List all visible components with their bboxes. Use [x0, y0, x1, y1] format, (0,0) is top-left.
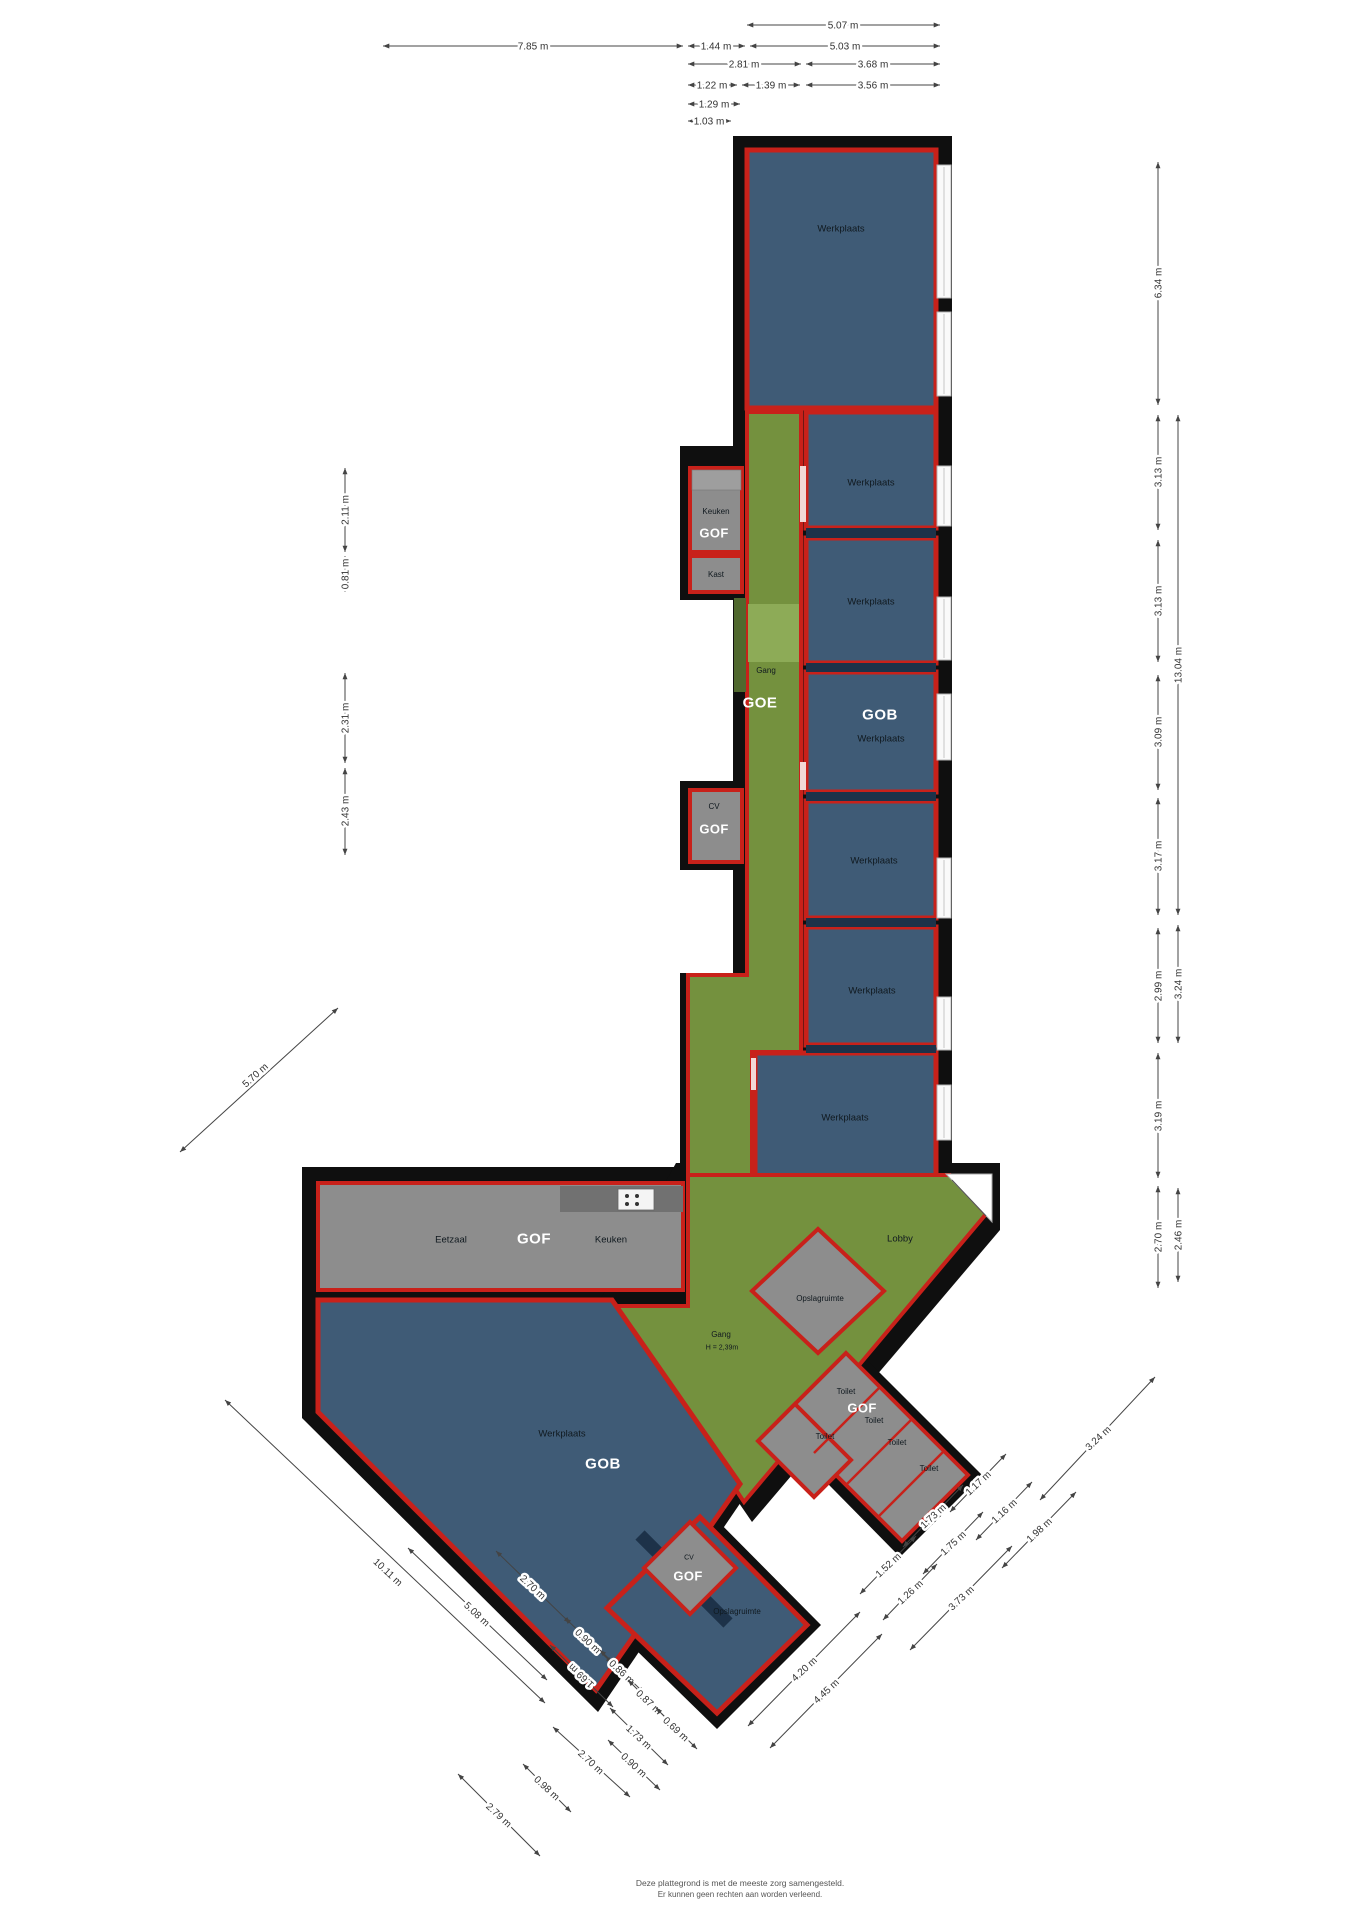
dimension-label: 2.70 m: [1154, 1222, 1165, 1253]
dimension-label: 5.70 m: [241, 1061, 271, 1090]
dimension-label: 2.31 m: [341, 703, 352, 734]
room-label: Werkplaats: [850, 855, 898, 866]
dim-left-diagonal-0: 5.70 m: [180, 1008, 338, 1152]
room-werkplaats-4-gob: [806, 672, 936, 792]
dimension-label: 5.03 m: [830, 42, 861, 53]
dimension-label: 0.87 m: [633, 1688, 663, 1717]
dim-right-outer-1: 3.24 m: [1174, 925, 1185, 1043]
dimension-label: 7.85 m: [518, 42, 549, 53]
dimension-label: 3.68 m: [858, 60, 889, 71]
dimension-label: 3.24 m: [1174, 969, 1185, 1000]
dimension-label: 10.11 m: [371, 1557, 404, 1589]
dim-left-0: 2.11 m: [341, 468, 352, 552]
dimension-label: 13.04 m: [1174, 647, 1185, 683]
room-werkplaats-1: [747, 150, 936, 408]
dimension-label: 0.81 m: [341, 559, 352, 590]
dim-top-10: 1.03 m: [688, 117, 731, 128]
dim-right-outer-0: 13.04 m: [1174, 415, 1185, 915]
dim-br-2: 1.16 m: [976, 1482, 1032, 1540]
zone-code-gof-keuken: GOF: [699, 526, 728, 541]
dimensions-left: 2.11 m 0.81 m 2.31 m 2.43 m 5.70 m: [180, 468, 352, 1152]
dimension-label: 5.08 m: [461, 1600, 491, 1629]
divider-5: [806, 1045, 936, 1053]
dim-right-outer-2: 2.46 m: [1174, 1188, 1185, 1282]
room-label-keuken: Keuken: [702, 507, 729, 516]
room-label: Werkplaats: [857, 733, 905, 744]
divider-1: [806, 528, 936, 538]
dim-right-inner-5: 2.99 m: [1154, 928, 1165, 1043]
zone-code-gob-bottom: GOB: [585, 1455, 621, 1472]
dimension-label: 1.03 m: [694, 117, 725, 128]
footer-disclaimer: Deze plattegrond is met de meeste zorg s…: [636, 1878, 844, 1899]
divider-3: [806, 792, 936, 801]
stove-burner: [635, 1194, 639, 1198]
room-height-note: H = 2,39m: [706, 1344, 739, 1351]
dim-bl-9: 0.90 m: [608, 1740, 660, 1790]
dimension-label: 2.43 m: [341, 796, 352, 827]
dimension-label: 2.46 m: [1174, 1220, 1185, 1251]
dimension-label: 0.90 m: [618, 1751, 648, 1780]
room-werkplaats-2: [806, 412, 936, 528]
dimension-label: 1.75 m: [939, 1529, 969, 1558]
room-label-toilet-5: Toilet: [920, 1464, 939, 1473]
window-8: [937, 1085, 951, 1140]
zone-code-gof-cv: GOF: [699, 822, 728, 837]
stove-burner: [625, 1194, 629, 1198]
dimension-label: 3.13 m: [1154, 586, 1165, 617]
stove-icon: [618, 1189, 654, 1210]
dimension-label: 4.45 m: [812, 1677, 842, 1706]
dim-top-8: 3.56 m: [806, 81, 940, 92]
room-label: Werkplaats: [817, 223, 865, 234]
zone-code-gob-top: GOB: [862, 706, 898, 723]
dim-top-7: 1.39 m: [742, 81, 800, 92]
dim-top-2: 1.44 m: [688, 42, 745, 53]
dimension-label: 2.70 m: [575, 1748, 605, 1777]
dimension-label: 3.56 m: [858, 81, 889, 92]
window-4: [937, 597, 951, 660]
dimension-label: 3.09 m: [1154, 717, 1165, 748]
window-5: [937, 694, 951, 760]
room-label-gang-2: Gang: [711, 1330, 731, 1339]
dimension-label: 3.13 m: [1154, 457, 1165, 488]
room-label-opslag-mid: Opslagruimte: [796, 1294, 844, 1303]
dim-right-inner-0: 6.34 m: [1154, 162, 1165, 405]
dimension-label: 5.07 m: [828, 21, 859, 32]
dimension-label: 1.98 m: [1025, 1516, 1055, 1545]
footer-line-1: Deze plattegrond is met de meeste zorg s…: [636, 1878, 844, 1888]
dim-top-6: 1.22 m: [688, 81, 737, 92]
dim-bl-10: 2.70 m: [553, 1727, 630, 1797]
floorplan-canvas: Werkplaats Werkplaats Werkplaats GOB Wer…: [0, 0, 1358, 1920]
dimensions-top: 5.07 m 7.85 m 1.44 m 5.03 m 2.81 m 3.68 …: [383, 21, 940, 128]
floorplan-page: Werkplaats Werkplaats Werkplaats GOB Wer…: [0, 0, 1358, 1920]
dim-left-3: 2.43 m: [341, 768, 352, 855]
dim-bl-11: 0.98 m: [523, 1764, 571, 1812]
dimension-label: 3.17 m: [1154, 841, 1165, 872]
dim-right-inner-4: 3.17 m: [1154, 798, 1165, 915]
dimension-label: 0.98 m: [531, 1774, 561, 1803]
dim-top-1: 7.85 m: [383, 42, 683, 53]
dim-left-2: 2.31 m: [341, 673, 352, 763]
door-mark-3: [751, 1058, 756, 1090]
dim-right-inner-3: 3.09 m: [1154, 675, 1165, 790]
footer-line-2: Er kunnen geen rechten aan worden verlee…: [658, 1890, 823, 1899]
divider-4: [806, 918, 936, 927]
door-mark-2: [800, 762, 806, 790]
dim-right-inner-1: 3.13 m: [1154, 415, 1165, 530]
zone-code-goe: GOE: [743, 694, 778, 711]
dim-left-1: 0.81 m: [341, 556, 352, 592]
room-label-toilet-4: Toilet: [888, 1438, 907, 1447]
dimension-label: 1.16 m: [990, 1497, 1020, 1526]
dimension-label: 4.20 m: [790, 1655, 820, 1684]
dim-right-inner-7: 2.70 m: [1154, 1186, 1165, 1288]
dimension-label: 3.19 m: [1154, 1101, 1165, 1132]
corridor-dark-band: [734, 598, 746, 692]
room-label-toilet-1: Toilet: [837, 1387, 856, 1396]
zone-code-gof-eetzaal: GOF: [517, 1230, 551, 1247]
stove-burner: [635, 1202, 639, 1206]
dim-top-0: 5.07 m: [747, 21, 940, 32]
window-6: [937, 858, 951, 918]
room-label: Werkplaats: [821, 1112, 869, 1123]
room-label-toilet-3: Toilet: [816, 1432, 835, 1441]
dimension-label: 2.79 m: [483, 1801, 513, 1830]
window-2: [937, 312, 951, 396]
zone-code-gof-cv2: GOF: [673, 1569, 702, 1584]
dimension-label: 1.52 m: [874, 1551, 904, 1580]
room-label-toilet-2: Toilet: [865, 1416, 884, 1425]
zone-code-gof-toilets: GOF: [847, 1401, 876, 1416]
dimension-label: 1.26 m: [896, 1578, 926, 1607]
door-mark-1: [800, 466, 806, 522]
vertical-wing-rooms: [688, 150, 936, 1186]
dim-top-5: 3.68 m: [806, 60, 940, 71]
dimension-label: 6.34 m: [1154, 268, 1165, 299]
room-label-cv-2: CV: [684, 1554, 694, 1561]
room-label-opslag-bottom: Opslagruimte: [713, 1607, 761, 1616]
dim-br-8: 3.73 m: [910, 1546, 1012, 1650]
dimension-label: 2.11 m: [341, 495, 352, 525]
window-1: [937, 165, 951, 298]
dimension-label: 2.99 m: [1154, 971, 1165, 1002]
dim-top-3: 5.03 m: [750, 42, 940, 53]
divider-2: [806, 663, 936, 672]
window-3: [937, 466, 951, 526]
room-label-keuken-2: Keuken: [595, 1234, 627, 1245]
dim-br-0: 3.24 m: [1040, 1377, 1155, 1500]
dimension-label: 1.44 m: [701, 42, 732, 53]
dim-right-inner-6: 3.19 m: [1154, 1053, 1165, 1178]
dim-bl-12: 2.79 m: [458, 1774, 540, 1856]
dimension-label: 1.73 m: [623, 1723, 653, 1752]
room-label-cv: CV: [708, 802, 720, 811]
dim-right-inner-2: 3.13 m: [1154, 540, 1165, 662]
dimension-label: 0.69 m: [660, 1715, 690, 1744]
dimension-label: 2.81 m: [729, 60, 760, 71]
room-label-gang: Gang: [756, 666, 776, 675]
window-7: [937, 997, 951, 1050]
dim-br-7: 1.26 m: [883, 1564, 937, 1620]
dim-top-4: 2.81 m: [688, 60, 801, 71]
kitchen-counter-small: [692, 470, 741, 490]
room-label-gob-werkplaats: Werkplaats: [538, 1428, 586, 1439]
room-label: Werkplaats: [847, 477, 895, 488]
dimension-label: 1.29 m: [699, 100, 730, 111]
room-label-eetzaal: Eetzaal: [435, 1234, 467, 1245]
corridor-light-patch: [748, 604, 799, 662]
room-label: Werkplaats: [847, 596, 895, 607]
room-label: Werkplaats: [848, 985, 896, 996]
dimension-label: 1.39 m: [756, 81, 787, 92]
room-label-lobby: Lobby: [887, 1233, 913, 1244]
dimensions-right: 6.34 m 3.13 m 3.13 m 3.09 m 3.17 m 2.99 …: [1154, 162, 1185, 1288]
dimension-label: 3.73 m: [947, 1584, 977, 1613]
dim-bl-8: 1.73 m: [610, 1708, 668, 1765]
room-label-kast: Kast: [708, 570, 725, 579]
dim-bl-7: 0.69 m: [656, 1708, 697, 1749]
stove-burner: [625, 1202, 629, 1206]
dim-top-9: 1.29 m: [688, 100, 740, 111]
dimension-label: 1.22 m: [697, 81, 728, 92]
dimension-label: 3.24 m: [1084, 1424, 1114, 1453]
